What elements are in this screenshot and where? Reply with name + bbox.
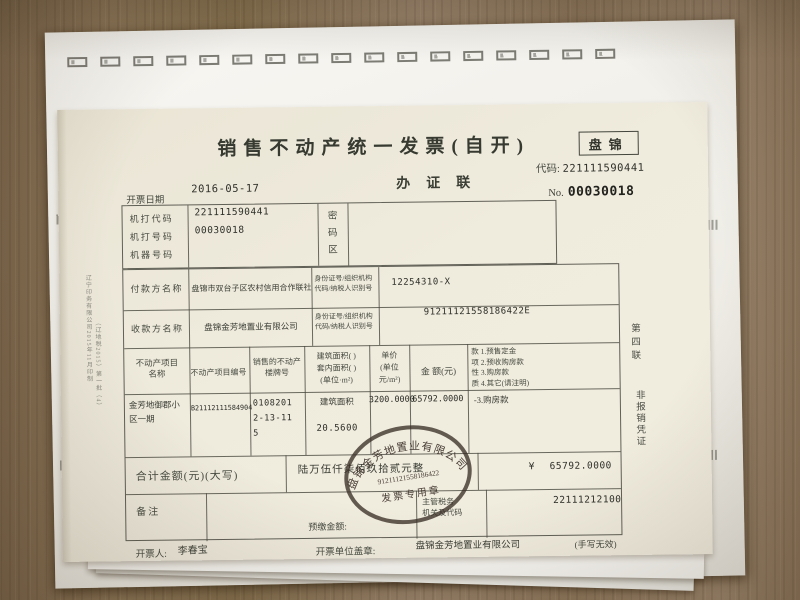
machine-code-label: 机打代码 xyxy=(130,212,174,226)
payee-id-value: 91211121558186422E xyxy=(424,306,531,317)
tax-office-code: 22111212100 xyxy=(553,494,622,506)
col-header-unit-price: 单价 (单位 元/m²) xyxy=(370,350,408,386)
issue-date-value: 2016-05-17 xyxy=(191,183,259,196)
col-header-amount: 金 额(元) xyxy=(410,364,466,378)
calibration-mark xyxy=(430,51,450,61)
svg-text:盘锦金芳地置业有限公司: 盘锦金芳地置业有限公司 xyxy=(339,431,471,493)
calibration-marks xyxy=(67,49,615,68)
machine-number-label: 机打号码 xyxy=(130,230,174,244)
payment-type-value: -3.购房款 xyxy=(474,393,509,405)
calibration-mark xyxy=(67,57,87,67)
col-header-project-name: 不动产项目 名称 xyxy=(126,357,187,380)
device-number-label: 机器号码 xyxy=(130,248,174,262)
currency-symbol: ¥ xyxy=(529,461,535,472)
unit-price-value: 3200.0000 xyxy=(369,395,409,405)
calibration-mark xyxy=(529,50,549,60)
payee-name: 盘锦金芳地置业有限公司 xyxy=(192,320,310,333)
no-value: 00030018 xyxy=(568,184,635,200)
issuer-label: 开票人: xyxy=(136,546,167,560)
col-header-building-no: 销售的不动产 楼牌号 xyxy=(250,356,303,379)
payer-id-value: 12254310-X xyxy=(391,277,450,288)
calibration-mark xyxy=(397,52,417,62)
grid-line xyxy=(189,347,191,456)
seal-credit-code: 91211121558186422 xyxy=(377,468,440,486)
area-type-value: 建筑面积 xyxy=(306,395,368,408)
col-header-project-code: 不动产项目编号 xyxy=(188,367,248,379)
amount-value: 65792.0000 xyxy=(409,394,467,405)
password-area-label: 密 码 区 xyxy=(319,208,346,259)
calibration-mark xyxy=(166,55,186,65)
no-label: No. xyxy=(548,188,564,199)
payee-label: 收款方名称 xyxy=(131,321,184,335)
payer-id-label: 身份证号/组织机构 代码/纳税人识别号 xyxy=(314,273,377,294)
issuer-name: 李春宝 xyxy=(177,541,208,557)
prepaid-amount-label: 预缴金额: xyxy=(308,519,347,532)
payee-id-label: 身份证号/组织机构 代码/纳税人识别号 xyxy=(315,311,378,332)
project-code-value: B21112111584904 xyxy=(191,404,252,413)
handwriting-invalid-note: (手写无效) xyxy=(575,537,617,551)
calibration-mark xyxy=(199,55,219,65)
invoice-number-line: No. 00030018 xyxy=(548,182,634,201)
company-seal: 盘锦金芳地置业有限公司 91211121558186422 发票专用章 xyxy=(330,408,485,538)
invoice-sheet: 销售不动产统一发票(自开) 盘锦 代码: 221111590441 办证联 No… xyxy=(57,102,712,562)
machine-code-value: 221111590441 xyxy=(194,206,269,218)
grid-line xyxy=(486,490,488,538)
calibration-mark xyxy=(562,49,582,59)
calibration-mark xyxy=(232,54,252,64)
seal-caption: 发票专用章 xyxy=(380,483,441,505)
total-label: 合计金额(元)(大写) xyxy=(136,467,239,484)
building-no-value: 0108201 2-13-11 5 xyxy=(253,396,293,441)
payer-label: 付款方名称 xyxy=(130,281,183,295)
col-header-area: 建筑面积( ) 套内面积( ) (单位·m²) xyxy=(305,350,367,387)
project-name-value: 金芳地御郡小区一期 xyxy=(129,397,187,426)
total-amount-value: 65792.0000 xyxy=(550,460,612,472)
grid-line xyxy=(124,304,619,311)
remark-label: 备注 xyxy=(136,503,160,518)
print-batch-info: （辽地税2015）第一批（4） xyxy=(93,319,103,409)
col-header-payment-type: 款 1.预售定金 项 2.预收购房款 性 3.购房款 质 4.其它(请注明) xyxy=(471,346,568,389)
issuing-unit-name: 盘锦金芳地置业有限公司 xyxy=(416,536,521,551)
invoice-title: 销售不动产统一发票(自开) xyxy=(114,129,634,162)
payer-name: 盘锦市双台子区农村信用合作联社 xyxy=(191,282,309,294)
calibration-mark xyxy=(595,49,615,59)
seal-company-name: 盘锦金芳地置业有限公司 xyxy=(339,431,471,493)
machine-code-box: 机打代码 机打号码 机器号码 221111590441 00030018 密 码… xyxy=(121,200,557,269)
copy-number-vertical: 第四联 xyxy=(627,323,641,364)
calibration-mark xyxy=(364,52,384,62)
copy-use-vertical: 非报销凭证 xyxy=(632,390,647,448)
calibration-mark xyxy=(496,50,516,60)
calibration-mark xyxy=(463,51,483,61)
calibration-mark xyxy=(133,56,153,66)
grid-line xyxy=(125,388,620,395)
calibration-mark xyxy=(265,54,285,64)
calibration-mark xyxy=(298,53,318,63)
calibration-mark xyxy=(331,53,351,63)
photo-of-invoice-on-desk: 销售不动产统一发票(自开) 盘锦 代码: 221111590441 办证联 No… xyxy=(0,0,800,600)
issuing-unit-label: 开票单位盖章: xyxy=(316,543,376,558)
machine-number-value: 00030018 xyxy=(195,225,245,237)
password-area xyxy=(348,201,557,266)
grid-line xyxy=(206,493,208,541)
grid-line xyxy=(285,455,286,492)
grid-line xyxy=(187,205,189,267)
region-box: 盘锦 xyxy=(579,131,639,156)
calibration-mark xyxy=(100,56,120,66)
